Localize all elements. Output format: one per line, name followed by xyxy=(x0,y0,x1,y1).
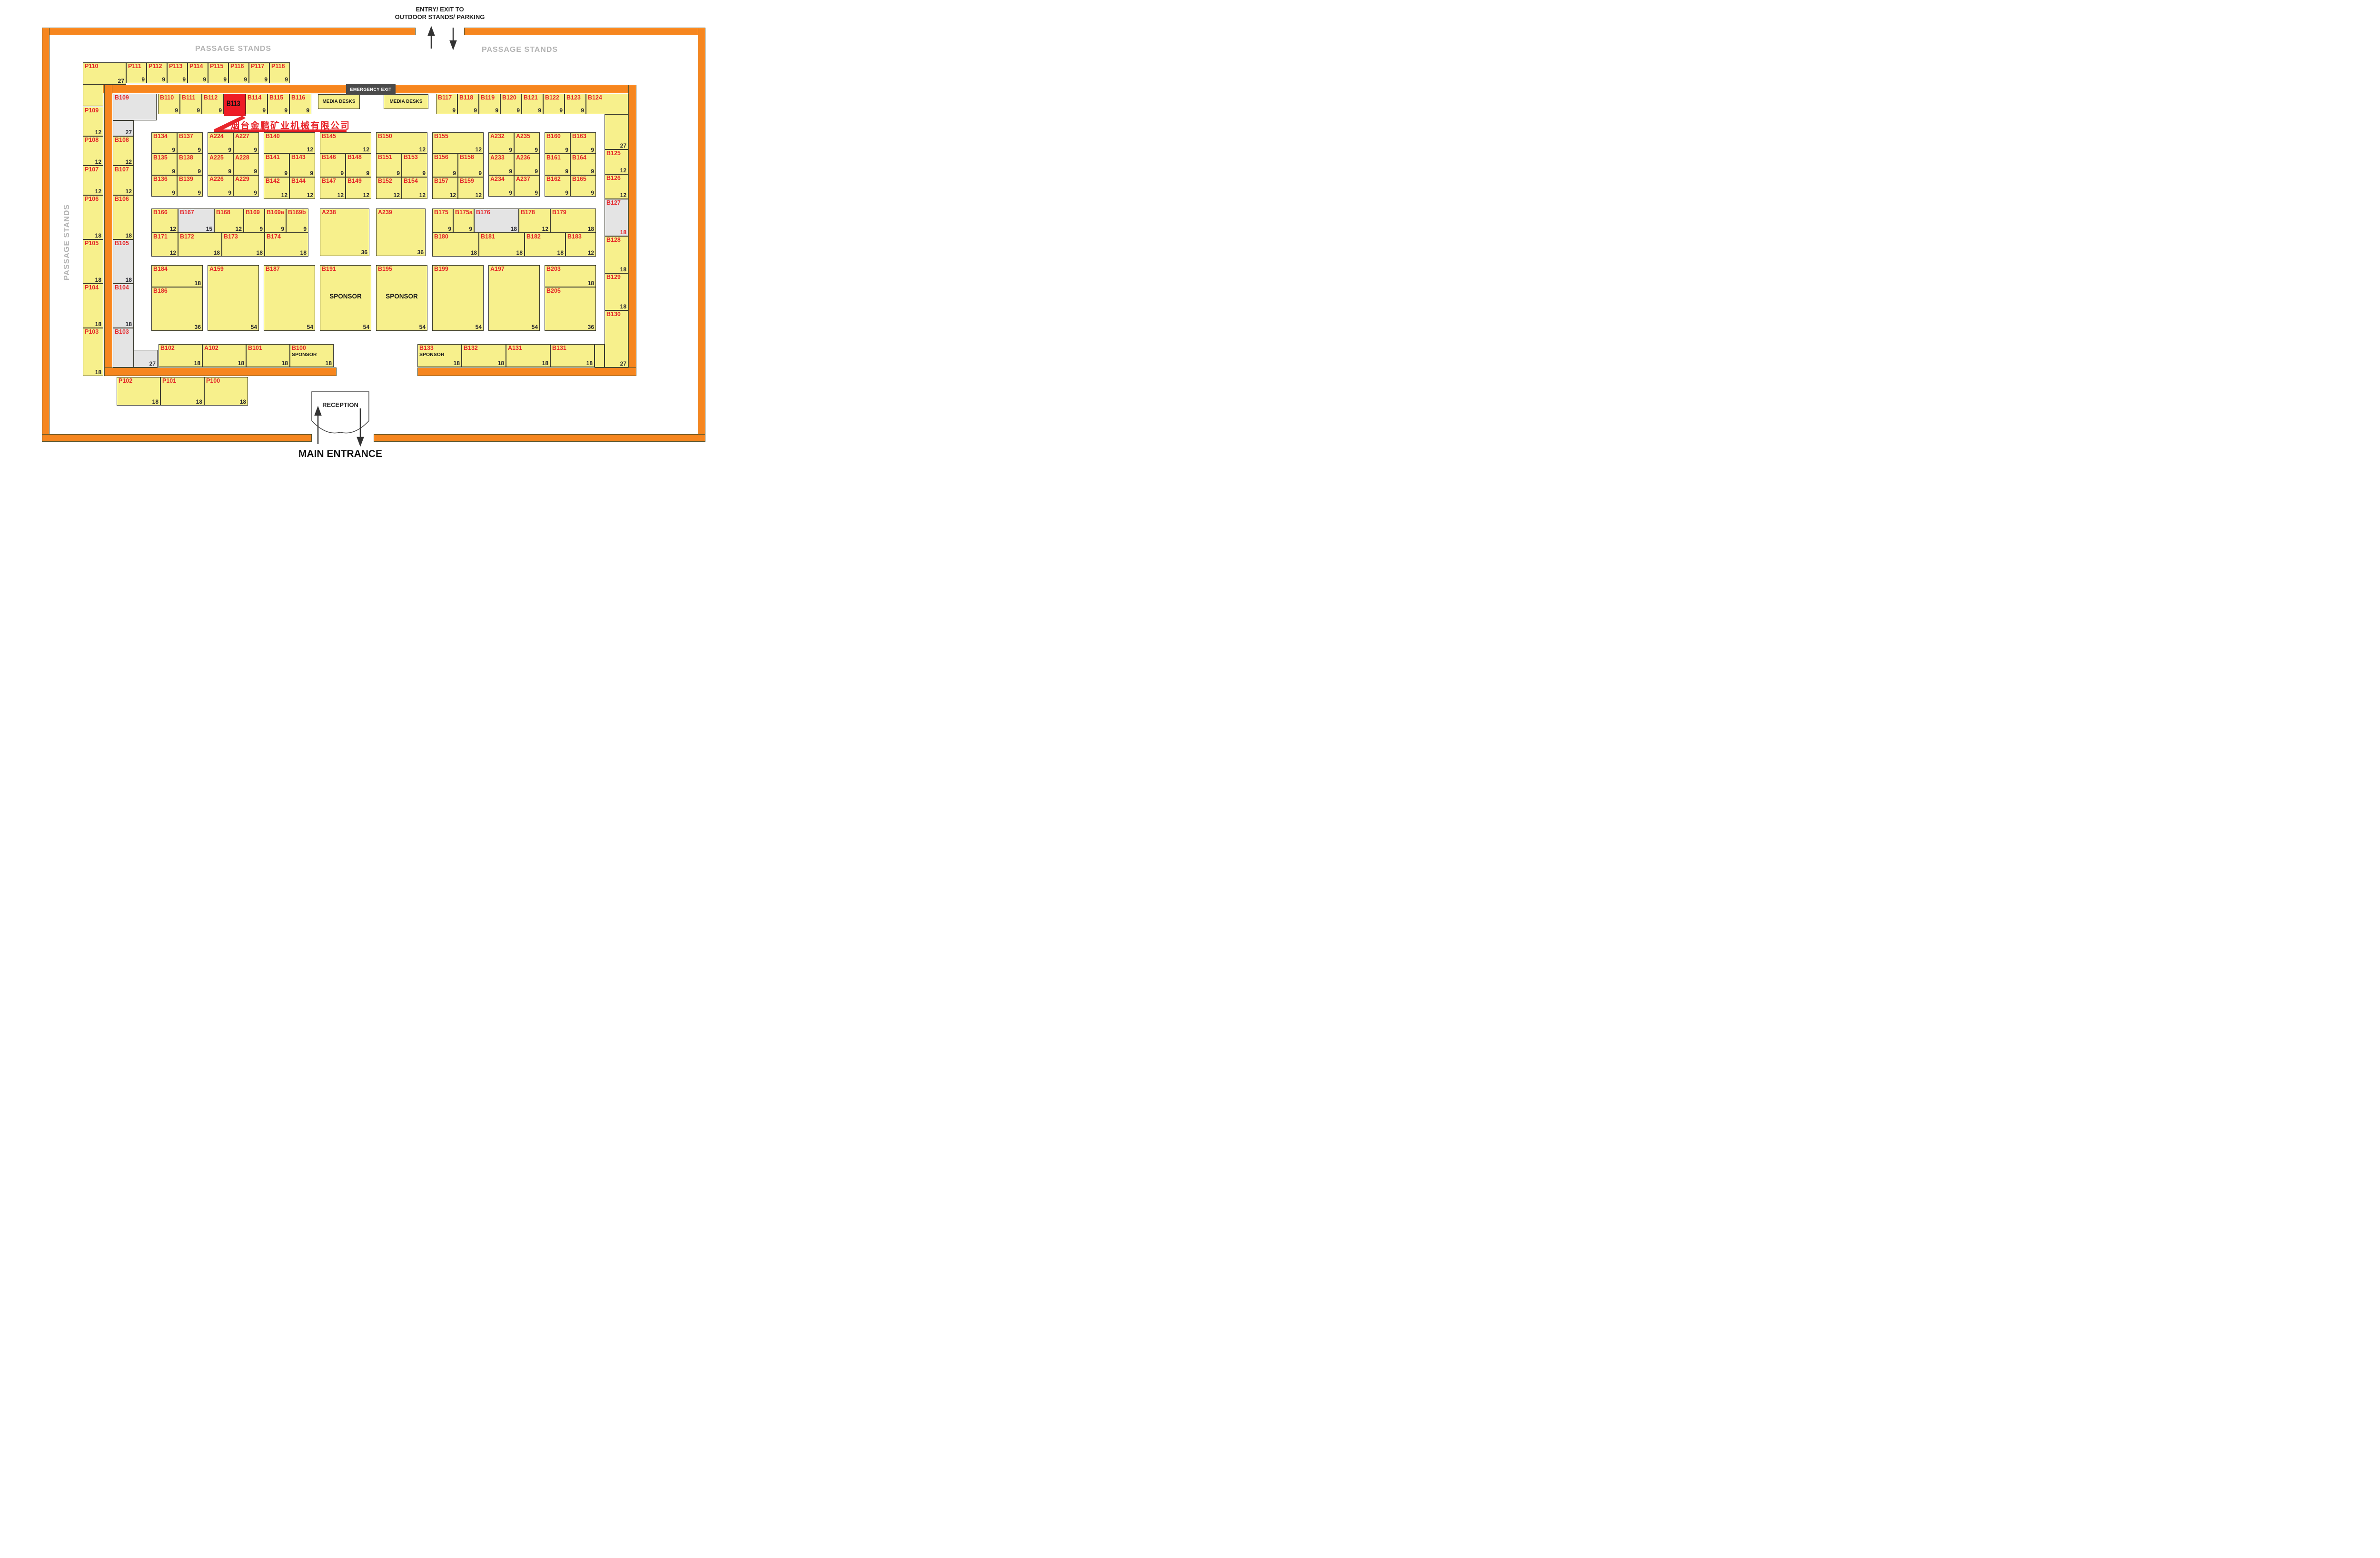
booth-B179[interactable]: B17918 xyxy=(550,208,596,233)
booth-size: 12 xyxy=(307,147,313,153)
booth-label: B184 xyxy=(153,266,168,272)
booth-label: B123 xyxy=(566,94,581,101)
booth-P108[interactable]: P10812 xyxy=(83,136,103,166)
booth-A227[interactable]: A2279 xyxy=(233,132,259,154)
booth-B171[interactable]: B17112 xyxy=(151,233,178,257)
booth-label: B106 xyxy=(115,196,129,202)
booth-size: 27 xyxy=(126,129,132,136)
booth-B148[interactable]: B1489 xyxy=(346,153,371,177)
booth-size: 36 xyxy=(361,249,367,256)
sponsor-label: SPONSOR xyxy=(377,293,427,300)
booth-P105[interactable]: P10518 xyxy=(83,239,103,284)
booth-B139[interactable]: B1399 xyxy=(177,175,203,197)
booth-B154[interactable]: B15412 xyxy=(402,177,427,199)
booth-size: 9 xyxy=(565,169,568,175)
booth-B146[interactable]: B1469 xyxy=(320,153,346,177)
booth-label: B136 xyxy=(153,176,168,182)
booth-B166[interactable]: B16612 xyxy=(151,208,178,233)
booth-B176[interactable]: B17618 xyxy=(474,208,519,233)
outer-wall-top-left xyxy=(42,28,416,35)
booth-size: 12 xyxy=(476,147,482,153)
booth-A131[interactable]: A13118 xyxy=(506,344,550,367)
booth-size: 9 xyxy=(218,108,222,114)
booth-B126[interactable]: B12612 xyxy=(605,174,628,199)
booth-B102[interactable]: B10218 xyxy=(159,344,202,367)
booth-label: B181 xyxy=(481,233,495,240)
booth-size: 9 xyxy=(448,226,451,232)
booth-B162[interactable]: B1629 xyxy=(545,175,570,197)
booth-B161[interactable]: B1619 xyxy=(545,154,570,175)
outer-wall-left xyxy=(42,28,50,442)
booth-size: 18 xyxy=(238,360,244,367)
booth-P109[interactable]: P10912 xyxy=(83,107,103,136)
booth-label: B118 xyxy=(459,94,473,101)
booth-size: 9 xyxy=(591,190,594,196)
highlight-company-name: 烟台金鹏矿业机械有限公司 xyxy=(230,119,350,131)
booth-size: 9 xyxy=(422,170,426,177)
booth-P104[interactable]: P10418 xyxy=(83,284,103,328)
booth-size: 9 xyxy=(452,108,456,114)
booth-B116[interactable]: B1169 xyxy=(289,94,311,114)
booth-P113[interactable]: P1139 xyxy=(167,62,188,83)
booth-A237[interactable]: A2379 xyxy=(514,175,540,197)
booth-B184[interactable]: B18418 xyxy=(151,265,203,287)
booth-size: 9 xyxy=(254,147,257,153)
booth-B101[interactable]: B10118 xyxy=(246,344,290,367)
booth-size: 18 xyxy=(471,250,477,256)
booth-size: 54 xyxy=(476,324,482,330)
booth-label: P100 xyxy=(206,377,220,384)
inner-wall-bottom-left xyxy=(104,367,337,376)
booth-label: B127 xyxy=(606,199,621,206)
booth-B129[interactable]: B12918 xyxy=(605,273,628,310)
booth-label: A238 xyxy=(322,209,336,216)
booth-size: 9 xyxy=(538,108,541,114)
booth-size: 9 xyxy=(469,226,472,232)
booth-B120[interactable]: B1209 xyxy=(500,94,522,114)
booth-B134[interactable]: B1349 xyxy=(151,132,177,154)
booth-label: B183 xyxy=(567,233,582,240)
booth-label: B137 xyxy=(179,133,193,139)
booth-B132[interactable]: B13218 xyxy=(462,344,506,367)
booth-size: 9 xyxy=(581,108,584,114)
booth-size: 18 xyxy=(620,267,626,273)
booth-label: B169a xyxy=(267,209,284,216)
booth-P118[interactable]: P1189 xyxy=(269,62,290,83)
booth-B112[interactable]: B1129 xyxy=(202,94,224,114)
booth-B173[interactable]: B17318 xyxy=(222,233,265,257)
booth-size: 15 xyxy=(206,226,212,232)
booth-B156[interactable]: B1569 xyxy=(432,153,458,177)
entry-up-arrow xyxy=(428,28,434,49)
booth-size: 18 xyxy=(282,360,288,367)
booth-size: 9 xyxy=(285,77,288,83)
booth-B167[interactable]: B16715 xyxy=(178,208,214,233)
booth-B150[interactable]: B15012 xyxy=(376,132,427,153)
outer-wall-bottom-right xyxy=(374,434,705,442)
booth-size: 9 xyxy=(141,77,145,83)
entry-down-arrow xyxy=(450,28,456,49)
booth-size: 9 xyxy=(340,170,344,177)
booth-B191[interactable]: B191SPONSOR54 xyxy=(320,265,371,331)
booth-B151[interactable]: B1519 xyxy=(376,153,402,177)
booth-label: B145 xyxy=(322,133,336,139)
booth-B107[interactable]: B10712 xyxy=(113,166,134,195)
booth-B133[interactable]: B133SPONSOR18 xyxy=(417,344,462,367)
booth-P111[interactable]: P1119 xyxy=(126,62,147,83)
booth-B142[interactable]: B14212 xyxy=(264,177,289,199)
booth-size: 12 xyxy=(620,192,626,198)
booth-A225[interactable]: A2259 xyxy=(208,154,233,175)
booth-A228[interactable]: A2289 xyxy=(233,154,259,175)
booth-P102[interactable]: P10218 xyxy=(117,377,160,406)
booth-size: 18 xyxy=(95,321,101,327)
booth-size: 9 xyxy=(175,108,178,114)
booth-label: B148 xyxy=(347,154,362,160)
booth-B180[interactable]: B18018 xyxy=(432,233,479,257)
outer-wall-right xyxy=(698,28,705,442)
booth-size: 12 xyxy=(363,147,369,153)
booth-B141[interactable]: B1419 xyxy=(264,153,289,177)
booth-size: 9 xyxy=(453,170,456,177)
booth-B108[interactable]: B10812 xyxy=(113,136,134,166)
booth-size: 9 xyxy=(262,108,266,114)
booth-size: 9 xyxy=(254,190,257,196)
booth-label: B110 xyxy=(160,94,174,101)
booth-label: B169b xyxy=(288,209,306,216)
booth-B169b[interactable]: B169b9 xyxy=(286,208,308,233)
booth-size: 9 xyxy=(535,169,538,175)
booth-B130-part0[interactable]: B13027 xyxy=(605,310,628,367)
entry-exit-line2: OUTDOOR STANDS/ PARKING xyxy=(395,13,485,20)
booth-label: B122 xyxy=(545,94,559,101)
booth-size: 18 xyxy=(557,250,564,256)
booth-label: B153 xyxy=(404,154,418,160)
booth-B157[interactable]: B15712 xyxy=(432,177,458,199)
booth-size: 9 xyxy=(397,170,400,177)
reception-label: RECEPTION xyxy=(312,401,369,408)
booth-label: A226 xyxy=(209,176,224,182)
booth-P117[interactable]: P1179 xyxy=(249,62,269,83)
booth-size: 36 xyxy=(195,324,201,330)
booth-A234[interactable]: A2349 xyxy=(488,175,514,197)
booth-P112[interactable]: P1129 xyxy=(147,62,167,83)
booth-B182[interactable]: B18218 xyxy=(525,233,565,257)
booth-A226[interactable]: A2269 xyxy=(208,175,233,197)
booth-size: 9 xyxy=(254,169,257,175)
booth-label: P102 xyxy=(119,377,132,384)
booth-B124-part1[interactable]: 27 xyxy=(605,114,628,149)
booth-B159[interactable]: B15912 xyxy=(458,177,484,199)
booth-label: P116 xyxy=(230,63,244,69)
booth-A238[interactable]: A23836 xyxy=(320,208,369,256)
booth-size: 9 xyxy=(162,77,165,83)
booth-A233[interactable]: A2339 xyxy=(488,154,514,175)
booth-B199[interactable]: B19954 xyxy=(432,265,484,331)
booth-B195[interactable]: B195SPONSOR54 xyxy=(376,265,427,331)
booth-label: B172 xyxy=(180,233,194,240)
booth-B147[interactable]: B14712 xyxy=(320,177,346,199)
booth-label: B143 xyxy=(291,154,306,160)
booth-A229[interactable]: A2299 xyxy=(233,175,259,197)
booth-label: B158 xyxy=(460,154,474,160)
booth-B144[interactable]: B14412 xyxy=(289,177,315,199)
booth-label: B105 xyxy=(115,240,129,247)
booth-size: 12 xyxy=(95,129,101,136)
booth-size: 9 xyxy=(516,108,520,114)
booth-P116[interactable]: P1169 xyxy=(228,62,249,83)
booth-P103[interactable]: P10318 xyxy=(83,328,103,376)
booth-label: B154 xyxy=(404,178,418,184)
booth-B114[interactable]: B1149 xyxy=(246,94,268,114)
booth-size: 12 xyxy=(307,192,313,198)
booth-A197[interactable]: A19754 xyxy=(488,265,540,331)
booth-label: B121 xyxy=(524,94,538,101)
booth-label: B174 xyxy=(267,233,281,240)
booth-size: 9 xyxy=(259,226,263,232)
booth-size: 18 xyxy=(498,360,504,367)
booth-size: 18 xyxy=(95,277,101,283)
booth-label: B140 xyxy=(266,133,280,139)
booth-B124-part0[interactable]: B124 xyxy=(586,94,628,114)
booth-label: B166 xyxy=(153,209,168,216)
booth-label: B132 xyxy=(464,345,478,351)
booth-A159[interactable]: A15954 xyxy=(208,265,259,331)
booth-size: 54 xyxy=(251,324,257,330)
booth-size: 9 xyxy=(565,190,568,196)
booth-size: 18 xyxy=(95,369,101,376)
booth-size: 36 xyxy=(588,324,594,330)
booth-B145[interactable]: B14512 xyxy=(320,132,371,153)
booth-size: 12 xyxy=(450,192,456,198)
booth-B155[interactable]: B15512 xyxy=(432,132,484,153)
booth-label: P118 xyxy=(271,63,285,69)
booth-B175[interactable]: B1759 xyxy=(432,208,453,233)
booth-B165[interactable]: B1659 xyxy=(570,175,596,197)
booth-B103-part0[interactable]: B103 xyxy=(113,328,134,367)
booth-label: B187 xyxy=(266,266,280,272)
booth-size: 12 xyxy=(419,192,426,198)
booth-B205[interactable]: B20536 xyxy=(545,287,596,331)
booth-size: 9 xyxy=(509,147,512,153)
booth-B175a[interactable]: B175a9 xyxy=(453,208,474,233)
booth-A232[interactable]: A2329 xyxy=(488,132,514,154)
booth-B152[interactable]: B15212 xyxy=(376,177,402,199)
booth-label: B138 xyxy=(179,154,193,161)
booth-size: 54 xyxy=(419,324,426,330)
booth-size: 18 xyxy=(257,250,263,256)
booth-B106[interactable]: B10618 xyxy=(113,195,134,239)
booth-size: 9 xyxy=(198,190,201,196)
booth-B104[interactable]: B10418 xyxy=(113,284,134,328)
booth-size: 9 xyxy=(172,169,175,175)
booth-label: B139 xyxy=(179,176,193,182)
booth-label: B150 xyxy=(378,133,392,139)
booth-B186[interactable]: B18636 xyxy=(151,287,203,331)
booth-label: B135 xyxy=(153,154,168,161)
booth-size: 27 xyxy=(118,78,124,84)
booth-B172[interactable]: B17218 xyxy=(178,233,222,257)
inner-wall-left xyxy=(104,85,112,376)
booth-size: 9 xyxy=(303,226,307,232)
booth-B168[interactable]: B16812 xyxy=(214,208,244,233)
booth-A239[interactable]: A23936 xyxy=(376,208,426,256)
booth-B140[interactable]: B14012 xyxy=(264,132,315,153)
booth-size: 9 xyxy=(474,108,477,114)
booth-B128[interactable]: B12818 xyxy=(605,236,628,273)
booth-size: 27 xyxy=(620,361,626,367)
booth-B187[interactable]: B18754 xyxy=(264,265,315,331)
booth-B181[interactable]: B18118 xyxy=(479,233,525,257)
booth-P107[interactable]: P10712 xyxy=(83,166,103,195)
booth-A224[interactable]: A2249 xyxy=(208,132,233,154)
booth-label: B171 xyxy=(153,233,168,240)
entry-exit-label: ENTRY/ EXIT TO OUTDOOR STANDS/ PARKING xyxy=(392,6,487,21)
booth-label: A235 xyxy=(516,133,530,139)
booth-label: P103 xyxy=(85,328,99,335)
booth-label: P107 xyxy=(85,166,99,173)
booth-size: 9 xyxy=(244,77,247,83)
booth-size: 12 xyxy=(95,159,101,165)
booth-size: 9 xyxy=(478,170,482,177)
booth-B121[interactable]: B1219 xyxy=(522,94,543,114)
booth-B115[interactable]: B1159 xyxy=(268,94,289,114)
booth-label: B114 xyxy=(248,94,261,101)
booth-B123[interactable]: B1239 xyxy=(565,94,586,114)
booth-label: B179 xyxy=(552,209,566,216)
booth-B130-part1[interactable] xyxy=(595,344,605,367)
booth-B160[interactable]: B1609 xyxy=(545,132,570,154)
booth-label: B107 xyxy=(115,166,129,173)
booth-B203[interactable]: B20318 xyxy=(545,265,596,287)
booth-B103-part1[interactable]: 27 xyxy=(134,350,158,367)
booth-A235[interactable]: A2359 xyxy=(514,132,540,154)
booth-label: B103 xyxy=(115,328,129,335)
booth-B136[interactable]: B1369 xyxy=(151,175,177,197)
main-entrance-label: MAIN ENTRANCE xyxy=(269,448,412,460)
booth-label: P104 xyxy=(85,284,99,291)
booth-size: 18 xyxy=(588,280,594,287)
booth-A236[interactable]: A2369 xyxy=(514,154,540,175)
booth-B110[interactable]: B1109 xyxy=(158,94,180,114)
booth-B163[interactable]: B1639 xyxy=(570,132,596,154)
booth-B169[interactable]: B1699 xyxy=(244,208,265,233)
booth-B105[interactable]: B10518 xyxy=(113,239,134,284)
booth-B169a[interactable]: B169a9 xyxy=(265,208,286,233)
booth-B135[interactable]: B1359 xyxy=(151,154,177,175)
booth-size: 12 xyxy=(236,226,242,232)
booth-B111[interactable]: B1119 xyxy=(180,94,202,114)
booth-label: B120 xyxy=(502,94,516,101)
booth-size: 12 xyxy=(170,250,176,256)
booth-B149[interactable]: B14912 xyxy=(346,177,371,199)
booth-label: A197 xyxy=(490,266,505,272)
booth-P101[interactable]: P10118 xyxy=(160,377,204,406)
booth-label: B182 xyxy=(526,233,541,240)
booth-size: 12 xyxy=(337,192,344,198)
booth-size: 9 xyxy=(310,170,313,177)
media-desks-right[interactable]: MEDIA DESKS xyxy=(384,94,428,109)
booth-size: 9 xyxy=(591,169,594,175)
booth-B117[interactable]: B1179 xyxy=(436,94,457,114)
booth-P100[interactable]: P10018 xyxy=(204,377,248,406)
booth-label: B161 xyxy=(546,154,561,161)
entry-exit-line1: ENTRY/ EXIT TO xyxy=(416,6,464,13)
booth-B109-part1[interactable]: 27 xyxy=(113,120,134,136)
booth-label: P117 xyxy=(251,63,265,69)
booth-label: A225 xyxy=(209,154,224,161)
booth-B119[interactable]: B1199 xyxy=(479,94,500,114)
booth-P110-part1[interactable]: P11027 xyxy=(83,62,126,85)
booth-label: A228 xyxy=(235,154,249,161)
booth-B118[interactable]: B1189 xyxy=(457,94,479,114)
booth-label: B152 xyxy=(378,178,392,184)
booth-A102[interactable]: A10218 xyxy=(202,344,246,367)
booth-label: P108 xyxy=(85,137,99,143)
booth-size: 9 xyxy=(182,77,186,83)
booth-B164[interactable]: B1649 xyxy=(570,154,596,175)
booth-size: 12 xyxy=(126,159,132,165)
booth-B143[interactable]: B1439 xyxy=(289,153,315,177)
booth-label: P109 xyxy=(85,107,99,114)
booth-P115[interactable]: P1159 xyxy=(208,62,228,83)
booth-B127[interactable]: B12718 xyxy=(605,199,628,236)
booth-size: 9 xyxy=(591,147,594,153)
booth-B158[interactable]: B1589 xyxy=(458,153,484,177)
booth-size: 9 xyxy=(264,77,268,83)
booth-label: B167 xyxy=(180,209,194,216)
sponsor-label: SPONSOR xyxy=(419,352,445,357)
booth-label: B124 xyxy=(588,94,602,101)
booth-label: B126 xyxy=(606,175,621,181)
booth-B178[interactable]: B17812 xyxy=(519,208,550,233)
reception-booth[interactable] xyxy=(312,392,369,433)
booth-B137[interactable]: B1379 xyxy=(177,132,203,154)
booth-size: 12 xyxy=(170,226,176,232)
booth-label: B195 xyxy=(378,266,392,272)
booth-size: 9 xyxy=(172,190,175,196)
booth-size: 12 xyxy=(476,192,482,198)
booth-B122[interactable]: B1229 xyxy=(543,94,565,114)
booth-label: A102 xyxy=(204,345,218,351)
booth-B153[interactable]: B1539 xyxy=(402,153,427,177)
booth-label: A236 xyxy=(516,154,530,161)
booth-P114[interactable]: P1149 xyxy=(188,62,208,83)
booth-size: 27 xyxy=(149,361,156,367)
media-desks-left[interactable]: MEDIA DESKS xyxy=(318,94,360,109)
booth-size: 12 xyxy=(588,250,594,256)
booth-size: 54 xyxy=(363,324,369,330)
booth-size: 9 xyxy=(198,147,201,153)
booth-B109-part0[interactable]: B109 xyxy=(113,94,157,120)
booth-label: A239 xyxy=(378,209,392,216)
booth-label: A159 xyxy=(209,266,224,272)
booth-B138[interactable]: B1389 xyxy=(177,154,203,175)
booth-size: 18 xyxy=(152,399,159,405)
booth-label: B191 xyxy=(322,266,336,272)
booth-label: P113 xyxy=(169,63,183,69)
booth-B113[interactable]: B113 xyxy=(224,94,246,116)
booth-P106[interactable]: P10618 xyxy=(83,195,103,239)
booth-B125[interactable]: B12512 xyxy=(605,149,628,174)
booth-B183[interactable]: B18312 xyxy=(565,233,596,257)
booth-B174[interactable]: B17418 xyxy=(265,233,308,257)
booth-B131[interactable]: B13118 xyxy=(550,344,595,367)
booth-label: A131 xyxy=(508,345,522,351)
booth-size: 9 xyxy=(228,190,231,196)
booth-B100[interactable]: B100SPONSOR18 xyxy=(290,344,334,367)
booth-label: B160 xyxy=(546,133,561,139)
